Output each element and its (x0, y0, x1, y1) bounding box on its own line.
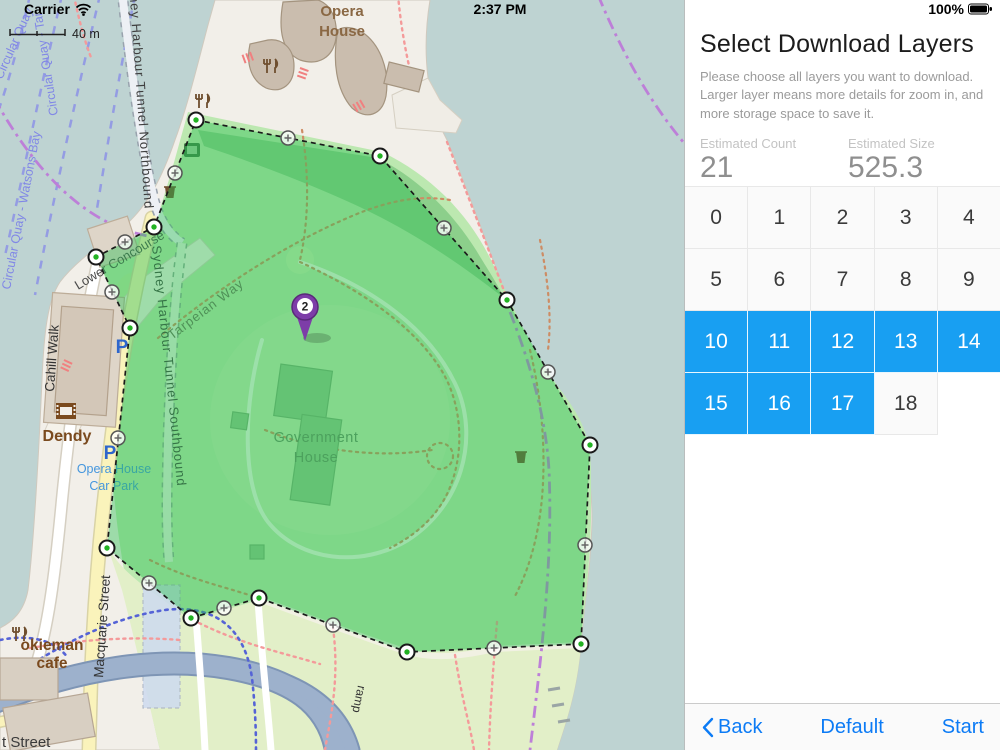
estimated-size-value: 525.3 (848, 151, 996, 186)
back-chevron-icon (701, 717, 714, 738)
street-label: t Street (2, 734, 51, 750)
download-layers-panel: Select Download Layers Please choose all… (684, 0, 1000, 750)
layer-grid: 0123456789101112131415161718 (685, 186, 1000, 435)
layer-cell-1[interactable]: 1 (748, 187, 811, 249)
poi-label: Dendy (43, 428, 92, 445)
vertex-handle[interactable] (189, 113, 204, 128)
battery-icon (968, 3, 993, 15)
midpoint-handle[interactable] (118, 235, 132, 249)
layer-cell-6[interactable]: 6 (748, 249, 811, 311)
vertex-handle[interactable] (373, 149, 388, 164)
layer-cell-4[interactable]: 4 (938, 187, 1000, 249)
midpoint-handle[interactable] (437, 221, 451, 235)
layer-cell-9[interactable]: 9 (938, 249, 1000, 311)
layer-cell-17[interactable]: 17 (811, 373, 874, 435)
map-pin-label: 2 (302, 300, 309, 314)
start-button[interactable]: Start (942, 716, 984, 739)
status-bar: Carrier 2:37 PM 100% (0, 0, 1000, 20)
layer-cell-13[interactable]: 13 (875, 311, 938, 373)
back-button[interactable]: Back (701, 716, 762, 739)
poi-label: House (319, 23, 365, 40)
vertex-handle[interactable] (400, 645, 415, 660)
map-view[interactable]: Circular Quay - Watsons Bay Circular Qua… (0, 0, 684, 750)
vertex-handle[interactable] (123, 321, 138, 336)
vertex-handle[interactable] (500, 293, 515, 308)
clock-label: 2:37 PM (0, 1, 1000, 17)
bottom-toolbar: Back Default Start (685, 703, 1000, 750)
default-button-label: Default (820, 716, 883, 739)
layer-cell-18[interactable]: 18 (875, 373, 938, 435)
poi-label: cafe (36, 655, 67, 672)
layer-cell-8[interactable]: 8 (875, 249, 938, 311)
back-button-label: Back (718, 716, 762, 739)
layer-cell-empty (938, 373, 1000, 435)
default-button[interactable]: Default (820, 716, 883, 739)
app-window: Circular Quay - Watsons Bay Circular Qua… (0, 0, 1000, 750)
layer-cell-7[interactable]: 7 (811, 249, 874, 311)
midpoint-handle[interactable] (168, 166, 182, 180)
layer-cell-11[interactable]: 11 (748, 311, 811, 373)
layer-cell-3[interactable]: 3 (875, 187, 938, 249)
midpoint-handle[interactable] (105, 285, 119, 299)
start-button-label: Start (942, 716, 984, 739)
estimated-count-label: Estimated Count (700, 136, 848, 151)
cinema-icon (56, 403, 76, 419)
layer-cell-14[interactable]: 14 (938, 311, 1000, 373)
layer-cell-15[interactable]: 15 (685, 373, 748, 435)
midpoint-handle[interactable] (541, 365, 555, 379)
vertex-handle[interactable] (89, 250, 104, 265)
estimated-size-label: Estimated Size (848, 136, 996, 151)
layer-cell-5[interactable]: 5 (685, 249, 748, 311)
map-svg: Circular Quay - Watsons Bay Circular Qua… (0, 0, 684, 750)
panel-title: Select Download Layers (700, 30, 986, 59)
estimated-count-value: 21 (700, 151, 848, 186)
vertex-handle[interactable] (574, 637, 589, 652)
vertex-handle[interactable] (100, 541, 115, 556)
layer-cell-10[interactable]: 10 (685, 311, 748, 373)
panel-description: Please choose all layers you want to dow… (700, 68, 986, 123)
scale-label: 40 m (72, 27, 100, 41)
poi-label: okieman (21, 637, 84, 654)
parking-icon: P (104, 443, 117, 464)
layer-cell-12[interactable]: 12 (811, 311, 874, 373)
midpoint-handle[interactable] (326, 618, 340, 632)
layer-cell-2[interactable]: 2 (811, 187, 874, 249)
midpoint-handle[interactable] (578, 538, 592, 552)
midpoint-handle[interactable] (217, 601, 231, 615)
vertex-handle[interactable] (147, 220, 162, 235)
layer-cell-16[interactable]: 16 (748, 373, 811, 435)
vertex-handle[interactable] (252, 591, 267, 606)
midpoint-handle[interactable] (281, 131, 295, 145)
vertex-handle[interactable] (184, 611, 199, 626)
midpoint-handle[interactable] (487, 641, 501, 655)
vertex-handle[interactable] (583, 438, 598, 453)
battery-percent-label: 100% (928, 1, 964, 17)
layer-cell-0[interactable]: 0 (685, 187, 748, 249)
midpoint-handle[interactable] (111, 431, 125, 445)
midpoint-handle[interactable] (142, 576, 156, 590)
